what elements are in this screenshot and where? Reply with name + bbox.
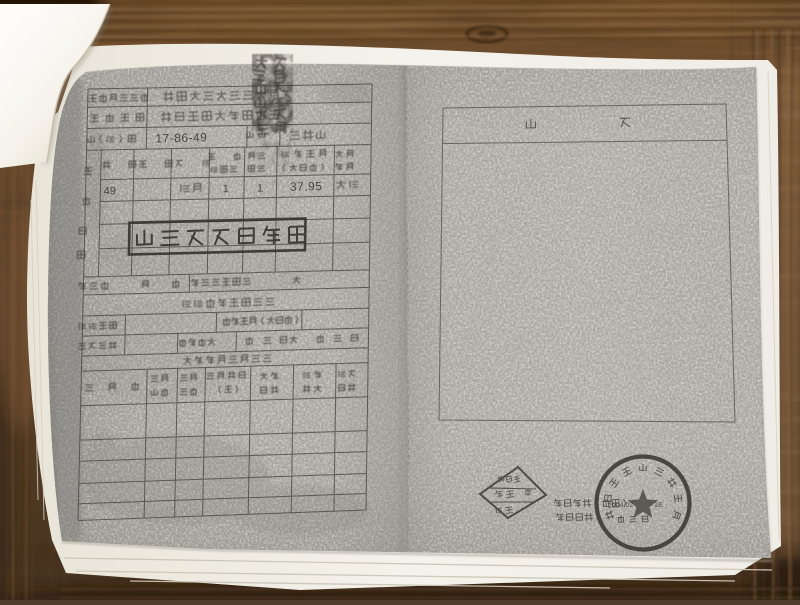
svg-text:1: 1 <box>223 183 229 195</box>
svg-text:37.95: 37.95 <box>290 179 323 194</box>
svg-text:2004.02: 2004.02 <box>608 502 634 510</box>
svg-text:18.: 18. <box>654 502 664 509</box>
svg-text:17-86-49: 17-86-49 <box>155 130 207 145</box>
svg-text:49: 49 <box>104 185 117 197</box>
